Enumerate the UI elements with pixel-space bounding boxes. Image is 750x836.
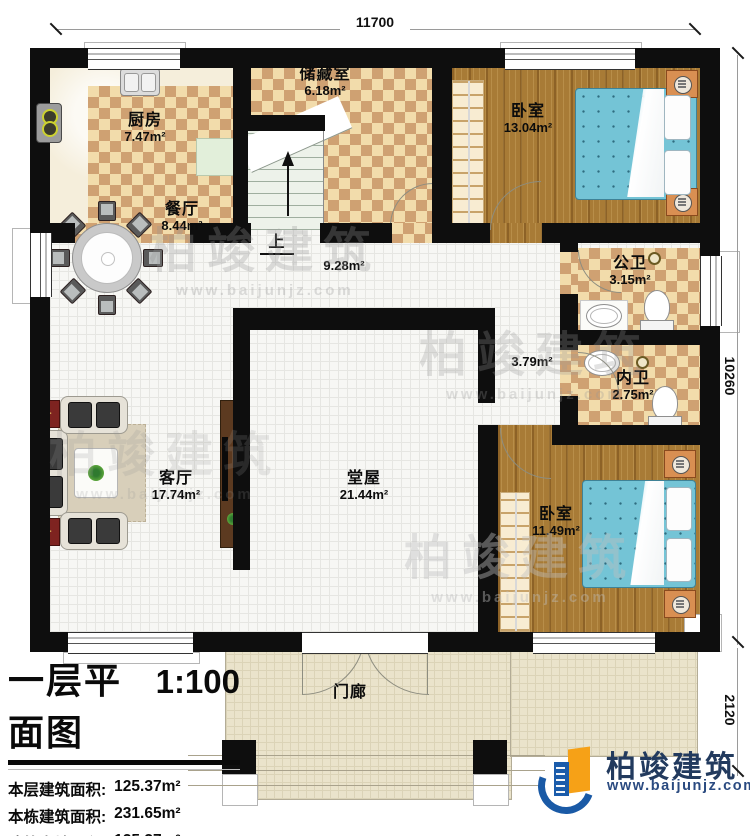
window-living <box>68 632 193 654</box>
wall-stair-top <box>233 115 325 131</box>
wall-storage-bedroom1 <box>432 48 452 243</box>
wall-bedroom1-south-a <box>452 223 490 243</box>
porch-step-line <box>188 785 545 786</box>
label-bedroom1: 卧室13.04m² <box>491 103 565 135</box>
logo-building-blue <box>554 762 569 796</box>
dimension-top-value: 11700 <box>340 14 410 30</box>
dim-tick <box>732 47 745 60</box>
stat-value: 125.37m² <box>114 832 180 836</box>
stat-row: 建筑占地面积: 125.37m² <box>8 832 240 836</box>
porch-pillar-base-right <box>473 774 509 806</box>
label-stair-hall-area: 9.28m² <box>312 258 376 273</box>
dimension-right-main-value: 10260 <box>722 346 738 406</box>
staircase <box>248 131 323 230</box>
title-underline <box>8 760 240 765</box>
dining-chair <box>50 249 70 267</box>
wall-bath-west-a <box>560 230 578 252</box>
wardrobe-bedroom1 <box>452 80 484 227</box>
stat-value: 125.37m² <box>114 778 180 800</box>
bath1-sink <box>586 304 622 328</box>
company-logo-icon <box>538 746 602 804</box>
floor-porch <box>225 650 512 800</box>
wall-stair-left <box>233 131 248 230</box>
floor-terrace-right <box>510 645 698 757</box>
window-dining <box>30 233 52 297</box>
nightstand <box>664 450 696 478</box>
stats-list: 本层建筑面积: 125.37m² 本栋建筑面积: 231.65m² 建筑占地面积… <box>8 778 240 836</box>
company-logo: 柏竣建筑 www.baijunjz.com <box>538 742 746 812</box>
label-kitchen: 厨房7.47m² <box>108 112 182 144</box>
pillow <box>664 95 691 140</box>
stat-label: 本层建筑面积: <box>8 778 106 800</box>
window-bedroom1 <box>505 48 635 70</box>
kitchen-sink <box>120 68 160 96</box>
window-public-bath <box>700 256 722 326</box>
stat-label: 本栋建筑面积: <box>8 805 106 827</box>
dining-chair <box>98 201 116 221</box>
stat-row: 本层建筑面积: 125.37m² <box>8 778 240 800</box>
floor-plan-canvas: 厨房7.47m² 储藏室6.18m² 餐厅8.44m² 卧室13.04m² 公卫… <box>0 0 750 836</box>
stat-label: 建筑占地面积: <box>8 832 106 836</box>
window-bedroom2 <box>533 632 655 654</box>
label-bedroom2: 卧室11.49m² <box>519 506 593 538</box>
threshold-storage <box>392 223 432 243</box>
stat-value: 231.65m² <box>114 805 180 827</box>
logo-building-orange <box>568 746 590 793</box>
label-inner-bath: 内卫2.75m² <box>596 370 670 402</box>
label-stairs-up: 上 <box>260 234 294 255</box>
stat-row: 本栋建筑面积: 231.65m² <box>8 805 240 827</box>
wall-hall-north <box>250 308 495 330</box>
label-storage: 储藏室6.18m² <box>288 66 362 98</box>
sofa-top <box>60 396 128 434</box>
title-thin-line <box>8 769 240 770</box>
kitchen-fridge <box>196 138 234 176</box>
dining-chair <box>98 295 116 315</box>
wall-bath-divider <box>560 330 700 345</box>
bath1-toilet <box>644 290 670 324</box>
label-public-bath: 公卫3.15m² <box>593 255 667 287</box>
bath2-lamp <box>636 356 649 369</box>
wall-hall-east-stub <box>478 308 495 403</box>
pillow <box>664 150 691 195</box>
nightstand <box>664 590 696 618</box>
label-living: 客厅17.74m² <box>139 470 213 502</box>
main-door-opening <box>302 632 428 654</box>
stairs-edge-line <box>323 131 324 230</box>
threshold-public-bath <box>560 252 578 294</box>
wall-right <box>700 48 720 652</box>
label-dining: 餐厅8.44m² <box>145 201 219 233</box>
pillow <box>666 538 692 582</box>
wall-bedroom2-west <box>478 425 498 632</box>
wall-hall-west <box>233 308 250 570</box>
dim-tick <box>732 636 745 649</box>
coffee-table <box>74 448 118 498</box>
wall-storage-south <box>320 223 392 243</box>
plan-scale: 1:100 <box>156 663 240 701</box>
dimension-right-porch-value: 2120 <box>722 682 738 738</box>
company-website: www.baijunjz.com <box>607 778 750 794</box>
porch-pillar-right <box>473 740 507 774</box>
nightstand <box>666 70 698 98</box>
dining-chair <box>143 249 163 267</box>
pillow <box>666 487 692 531</box>
window-kitchen <box>88 48 180 70</box>
title-block: 一层平面图 1:100 本层建筑面积: 125.37m² 本栋建筑面积: 231… <box>8 652 240 836</box>
label-corridor-area: 3.79m² <box>500 354 564 369</box>
plan-title: 一层平面图 <box>8 652 142 756</box>
kitchen-stove <box>36 103 62 143</box>
wall-bedroom2-north <box>552 425 700 445</box>
label-porch: 门廊 <box>320 684 380 702</box>
label-hall: 堂屋21.44m² <box>327 470 401 502</box>
sofa-bottom <box>60 512 128 550</box>
